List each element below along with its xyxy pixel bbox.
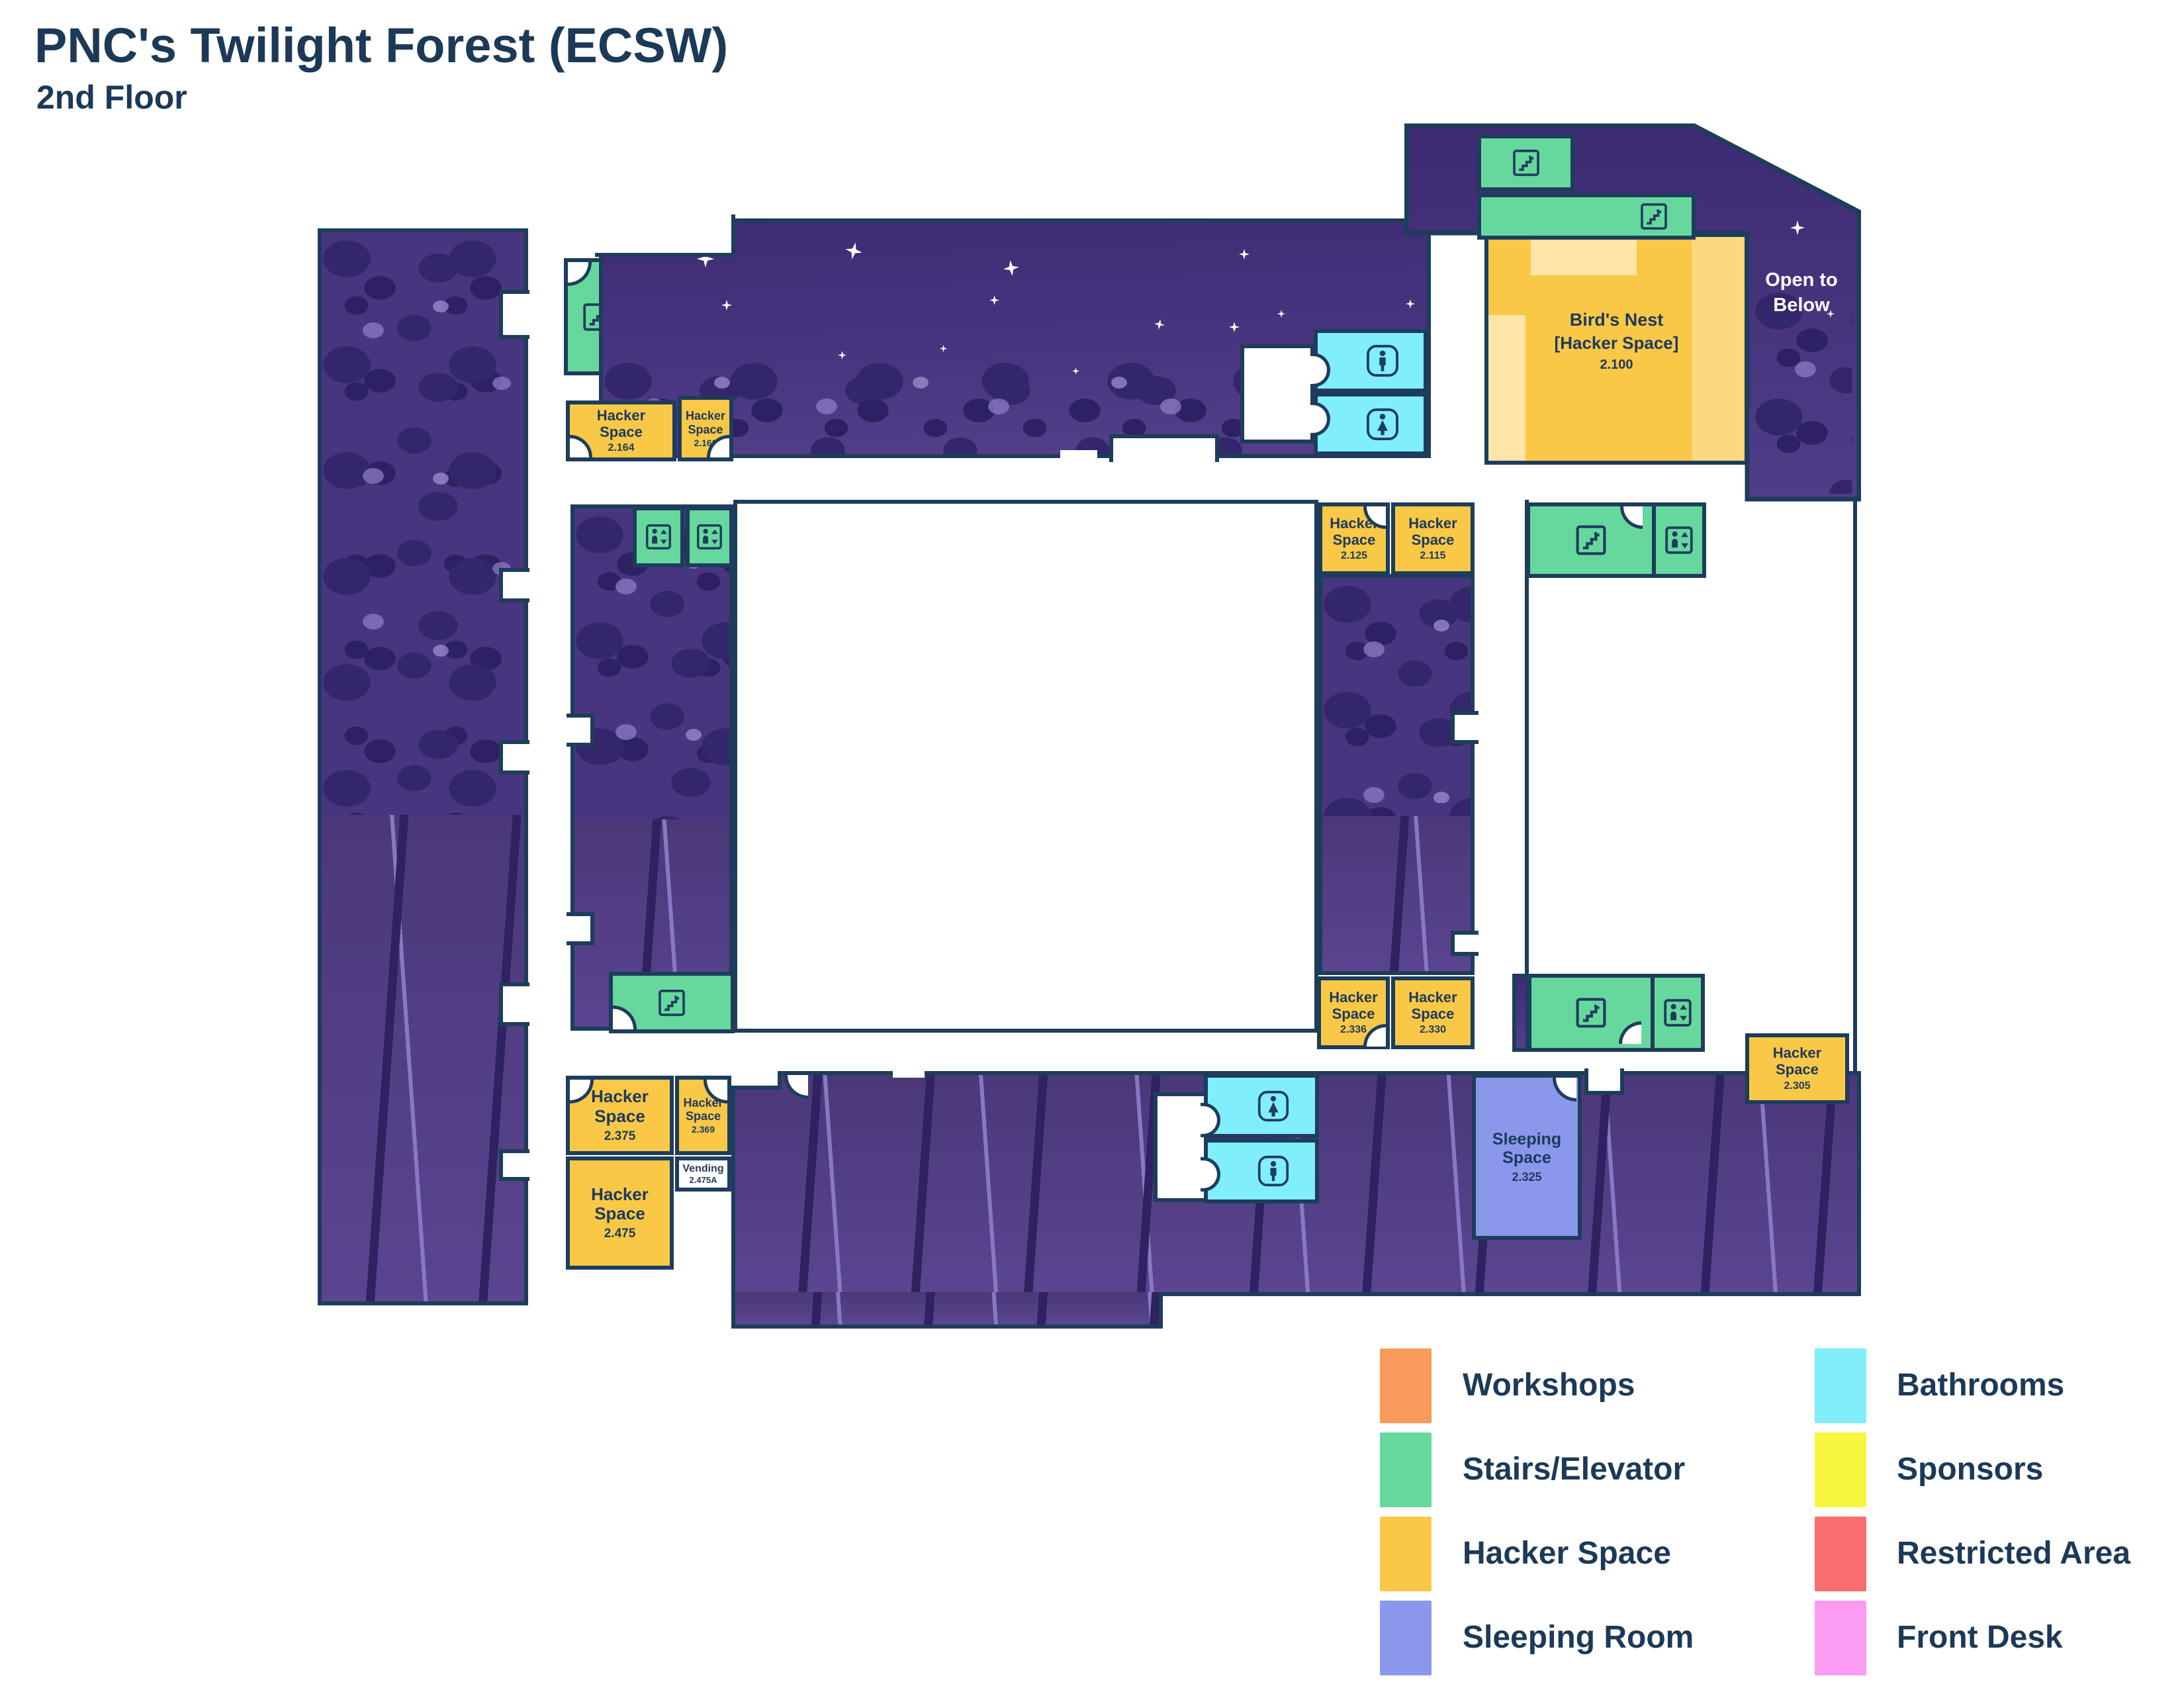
forest-column-right (1318, 574, 1475, 975)
wall-notch (731, 1071, 782, 1090)
wall-notch (499, 568, 529, 602)
legend-label-sleeping-room: Sleeping Room (1463, 1619, 1694, 1656)
central-open-room (733, 500, 1318, 1033)
open-to-below-label: Open to Below (1745, 268, 1858, 318)
stairwell-top-right-lower (1477, 193, 1696, 240)
room-number: 2.475A (690, 1175, 717, 1185)
door-gap (1109, 434, 1219, 462)
woman-icon (1365, 406, 1400, 442)
room-label: Hacker Space (682, 409, 729, 436)
room-label: Hacker Space (583, 1185, 657, 1223)
legend-label-bathrooms: Bathrooms (1897, 1367, 2064, 1403)
legend-swatch-sponsors (1815, 1432, 1866, 1507)
wall-notch (1451, 931, 1479, 956)
elevator-left-b (686, 506, 733, 567)
room-label: Hacker Space (590, 408, 653, 440)
door-gap (893, 1067, 925, 1078)
legend-swatch-sleeping-room (1380, 1601, 1432, 1675)
stairwell-elevator-right-upper (1526, 502, 1706, 578)
stairwell-elevator-right-lower (1527, 974, 1705, 1052)
wall-notch (499, 1149, 529, 1181)
elevator-icon (1662, 997, 1694, 1029)
room-label: Vending (682, 1163, 723, 1175)
legend-swatch-hacker-space (1380, 1517, 1432, 1591)
legend-swatch-front-desk (1815, 1601, 1866, 1675)
elevator-area (1652, 506, 1702, 574)
forest-canopy-highlight (574, 528, 729, 806)
bathroom-vestibule (1154, 1092, 1208, 1202)
stairwell-top-right-upper (1477, 134, 1574, 191)
room-number: 2.475 (604, 1227, 636, 1241)
forest-canopy-highlight (1754, 311, 1852, 470)
room-number: 2.164 (608, 442, 634, 454)
room-vending-2475a: Vending 2.475A (675, 1156, 731, 1192)
room-number: 2.375 (604, 1129, 636, 1144)
stairs-icon (1639, 201, 1669, 232)
room-number: 2.125 (1341, 550, 1367, 562)
wall-notch (567, 912, 594, 945)
stairs-icon (1511, 148, 1541, 178)
room-number: 2.330 (1420, 1024, 1446, 1036)
legend-swatch-stairs-elevator (1380, 1432, 1432, 1507)
elevator-left-a (633, 506, 684, 567)
room-number: 2.325 (1512, 1170, 1541, 1184)
legend-label-stairs-elevator: Stairs/Elevator (1463, 1451, 1685, 1487)
elevator-icon (1663, 524, 1695, 556)
wall-notch (499, 982, 529, 1026)
room-hacker-space-2475: Hacker Space 2.475 (566, 1156, 674, 1270)
man-icon (1365, 343, 1400, 379)
man-icon (1256, 1154, 1291, 1188)
legend-swatch-restricted-area (1815, 1517, 1866, 1591)
elevator-icon (695, 522, 724, 551)
room-hacker-space-2305: Hacker Space 2.305 (1745, 1033, 1849, 1104)
room-number: 2.336 (1340, 1024, 1367, 1036)
woman-icon (1256, 1089, 1291, 1123)
room-number: 2.305 (1784, 1080, 1810, 1092)
room-hacker-space-2115: Hacker Space 2.115 (1391, 502, 1475, 575)
hall-step (595, 214, 735, 257)
forest-strip-left (318, 228, 528, 1305)
elevator-icon (644, 522, 673, 551)
legend-label-front-desk: Front Desk (1897, 1619, 2063, 1656)
forest-trunks-texture (322, 815, 524, 1305)
room-number: 2.115 (1420, 550, 1445, 562)
wall-notch (1584, 1068, 1624, 1095)
forest-canopy-highlight (322, 272, 524, 735)
room-number: 2.369 (692, 1124, 715, 1135)
room-label: Hacker Space (1322, 990, 1385, 1022)
forest-trunks-texture (1322, 816, 1471, 975)
stairs-icon (1574, 523, 1608, 557)
legend-label-restricted-area: Restricted Area (1897, 1535, 2130, 1571)
wall-notch (499, 740, 529, 774)
legend-swatch-workshops (1380, 1348, 1432, 1423)
room-label: Hacker Space (583, 1087, 657, 1125)
legend-label-sponsors: Sponsors (1897, 1451, 2043, 1487)
legend-label-workshops: Workshops (1463, 1367, 1635, 1403)
bathroom-vestibule (1240, 344, 1314, 444)
room-label: Sleeping Space (1490, 1130, 1564, 1167)
room-label: Hacker Space (1402, 990, 1465, 1022)
door-gap (1060, 450, 1097, 459)
forest-canopy-highlight (1322, 591, 1471, 803)
room-label: Hacker Space (1402, 516, 1465, 548)
legend-swatch-bathrooms (1815, 1348, 1866, 1423)
page-title: PNC's Twilight Forest (ECSW) (34, 17, 728, 73)
floor-map: PNC's Twilight Forest (ECSW) 2nd Floor H… (0, 0, 2184, 1688)
forest-column-left (570, 504, 733, 1031)
bathroom-men-bottom (1204, 1139, 1319, 1203)
building-right-wall (1853, 496, 1857, 1079)
wall-notch (1451, 711, 1479, 744)
stairs-icon (1574, 996, 1608, 1030)
stairs-icon (657, 988, 687, 1018)
room-hacker-space-2330: Hacker Space 2.330 (1391, 976, 1475, 1049)
wall-notch (499, 290, 529, 339)
elevator-area (1651, 978, 1701, 1048)
page-subtitle: 2nd Floor (36, 78, 187, 117)
room-label: Hacker Space (1766, 1045, 1829, 1078)
legend-label-hacker-space: Hacker Space (1463, 1535, 1671, 1571)
bathroom-women-bottom (1204, 1074, 1319, 1138)
forest-strip-bottom-step (731, 1292, 1163, 1329)
wall-notch (567, 714, 594, 747)
